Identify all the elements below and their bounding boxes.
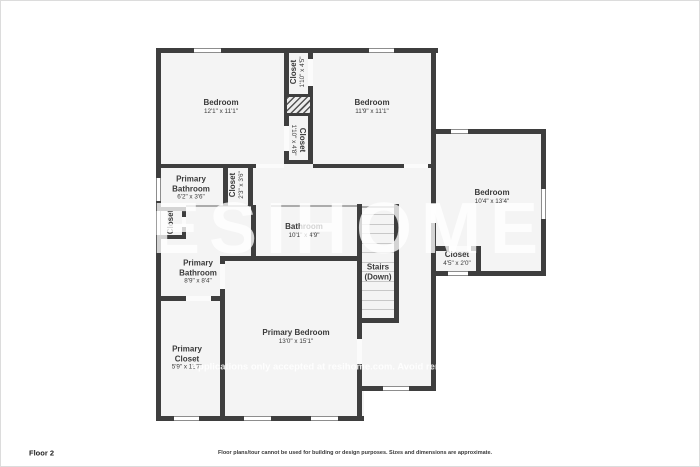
- window: [451, 129, 468, 134]
- window: [311, 416, 338, 421]
- room-name: Bedroom: [354, 98, 389, 108]
- wall-segment: [428, 164, 436, 168]
- room-label-bedroom-2: Bedroom 11'9" x 11'1": [354, 98, 389, 116]
- wall-segment: [308, 48, 313, 59]
- window: [244, 416, 271, 421]
- wall-segment: [156, 296, 186, 301]
- wall-segment: [431, 48, 436, 204]
- watermark-brand: RESIHOME: [91, 188, 547, 270]
- wall-segment: [211, 296, 220, 301]
- door-opening: [404, 164, 428, 168]
- room-dims: 13'0" x 15'1": [262, 338, 329, 346]
- door-opening: [308, 59, 313, 86]
- stair-step: [362, 309, 394, 310]
- window: [369, 48, 394, 53]
- watermark-notice: Applications only accepted at resihome.c…: [191, 362, 481, 373]
- window: [174, 416, 199, 421]
- room-label-closet-top: Closet 1'10" x 4'5": [289, 56, 307, 87]
- floor-plan: Bedroom 12'1" x 11'1" Bedroom 11'9" x 11…: [1, 1, 700, 467]
- room-name: Closet: [297, 124, 307, 155]
- room-name: Primary Bedroom: [262, 328, 329, 338]
- floor-label: Floor 2: [29, 449, 54, 458]
- room-name: Closet: [289, 56, 299, 87]
- stair-step: [362, 290, 394, 291]
- floor-plan-canvas: Bedroom 12'1" x 11'1" Bedroom 11'9" x 11…: [0, 0, 700, 467]
- window: [383, 386, 409, 391]
- hatched-chase: [284, 94, 313, 116]
- window: [194, 48, 221, 53]
- wall-segment: [313, 164, 404, 168]
- wall-segment: [431, 129, 546, 134]
- wall-segment: [220, 289, 225, 419]
- room-dims: 12'1" x 11'1": [203, 108, 238, 116]
- door-opening: [256, 164, 284, 168]
- room-name: Bedroom: [203, 98, 238, 108]
- door-opening: [186, 296, 211, 301]
- wall-segment: [284, 160, 313, 164]
- door-opening: [357, 339, 362, 364]
- room-label-closet-mid: Closet 1'10" x 4'8": [289, 124, 307, 155]
- room-dims: 1'10" x 4'8": [289, 124, 297, 155]
- wall-segment: [156, 164, 256, 168]
- window: [448, 271, 468, 276]
- wall-segment: [357, 318, 399, 323]
- stair-step: [362, 300, 394, 301]
- room-label-primary-bedroom: Primary Bedroom 13'0" x 15'1": [262, 328, 329, 346]
- disclaimer-text: Floor plans/tour cannot be used for buil…: [218, 450, 492, 456]
- room-label-bedroom-1: Bedroom 12'1" x 11'1": [203, 98, 238, 116]
- room-dims: 1'10" x 4'5": [299, 56, 307, 87]
- room-dims: 8'9" x 8'4": [171, 278, 225, 286]
- room-dims: 11'9" x 11'1": [354, 108, 389, 116]
- wall-segment: [357, 323, 362, 339]
